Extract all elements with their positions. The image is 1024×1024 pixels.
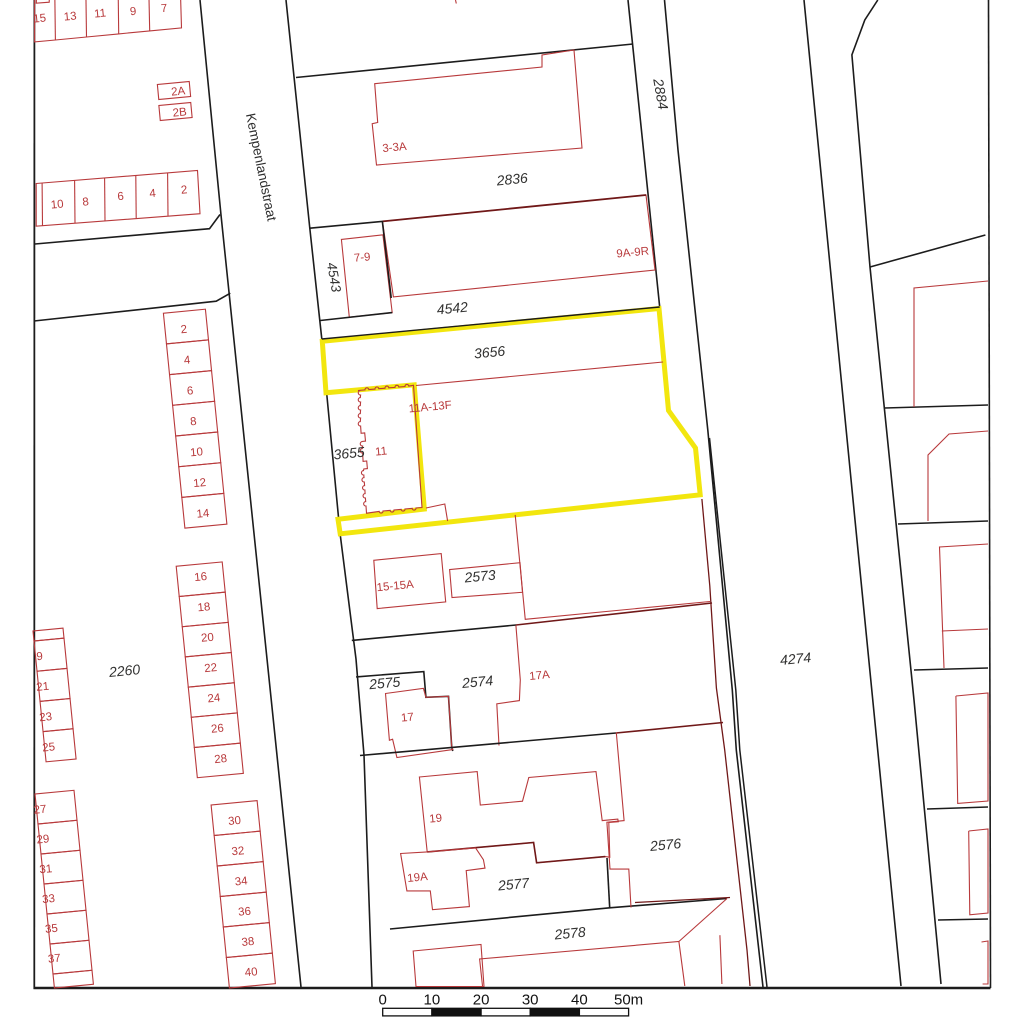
svg-text:10: 10 (190, 446, 204, 459)
svg-text:4542: 4542 (436, 299, 469, 318)
svg-text:10: 10 (424, 992, 441, 1009)
svg-text:17: 17 (400, 711, 414, 724)
svg-text:18: 18 (197, 601, 211, 614)
svg-text:7: 7 (160, 3, 168, 16)
svg-text:15: 15 (33, 12, 47, 25)
svg-text:2: 2 (180, 184, 188, 197)
svg-text:2575: 2575 (367, 673, 401, 692)
svg-text:9: 9 (129, 6, 137, 19)
svg-text:2576: 2576 (648, 835, 682, 854)
svg-text:2: 2 (180, 324, 188, 337)
svg-text:3656: 3656 (473, 343, 506, 362)
svg-text:30: 30 (228, 815, 242, 828)
svg-text:33: 33 (42, 893, 56, 906)
svg-text:0: 0 (379, 992, 387, 1009)
svg-text:17A: 17A (529, 669, 551, 683)
svg-text:8: 8 (82, 196, 90, 209)
svg-text:6: 6 (186, 385, 194, 398)
svg-text:31: 31 (39, 863, 53, 876)
svg-text:20: 20 (473, 992, 490, 1009)
svg-text:36: 36 (238, 906, 252, 919)
svg-text:19: 19 (429, 812, 443, 825)
svg-text:14: 14 (196, 508, 210, 521)
svg-text:6: 6 (117, 191, 125, 204)
svg-text:2A: 2A (171, 85, 186, 98)
svg-text:35: 35 (45, 923, 59, 936)
svg-text:40: 40 (571, 992, 588, 1009)
svg-text:4274: 4274 (779, 649, 812, 668)
svg-text:38: 38 (241, 936, 255, 949)
svg-text:20: 20 (200, 632, 214, 645)
svg-text:7-9: 7-9 (353, 251, 371, 265)
svg-text:3655: 3655 (333, 444, 366, 463)
svg-text:50m: 50m (614, 992, 643, 1009)
svg-text:30: 30 (522, 992, 539, 1009)
svg-text:10: 10 (50, 198, 64, 211)
svg-text:2574: 2574 (460, 672, 494, 691)
svg-text:32: 32 (231, 845, 245, 858)
svg-text:12: 12 (193, 477, 207, 490)
svg-text:19A: 19A (407, 871, 429, 885)
svg-text:23: 23 (39, 711, 53, 724)
svg-text:3-3A: 3-3A (382, 141, 408, 155)
svg-text:16: 16 (194, 571, 208, 584)
svg-text:34: 34 (234, 875, 248, 888)
svg-text:2578: 2578 (553, 924, 587, 943)
svg-text:29: 29 (36, 833, 50, 846)
svg-text:9: 9 (36, 651, 44, 664)
svg-text:2B: 2B (172, 106, 187, 119)
svg-text:8: 8 (190, 416, 198, 429)
svg-text:26: 26 (210, 723, 224, 736)
svg-text:40: 40 (244, 966, 258, 979)
svg-text:2260: 2260 (107, 661, 141, 680)
svg-text:28: 28 (214, 753, 228, 766)
svg-text:24: 24 (207, 692, 221, 705)
svg-text:25: 25 (42, 741, 56, 754)
svg-text:27: 27 (33, 804, 47, 817)
svg-text:11: 11 (375, 445, 388, 458)
svg-text:22: 22 (204, 662, 218, 675)
svg-text:37: 37 (47, 953, 61, 966)
svg-text:2577: 2577 (496, 874, 531, 893)
svg-text:11: 11 (94, 7, 107, 20)
svg-text:2836: 2836 (495, 170, 529, 189)
svg-text:2573: 2573 (463, 567, 497, 586)
svg-text:13: 13 (63, 10, 77, 23)
svg-text:21: 21 (36, 681, 50, 694)
